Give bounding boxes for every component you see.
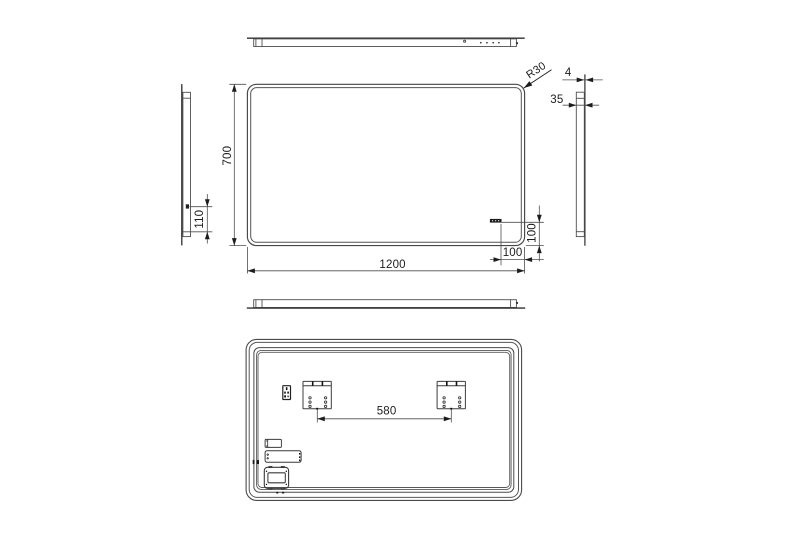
svg-text:35: 35 xyxy=(550,94,563,106)
svg-text:700: 700 xyxy=(222,146,234,166)
svg-text:580: 580 xyxy=(377,405,397,417)
svg-text:100: 100 xyxy=(526,223,538,243)
svg-text:4: 4 xyxy=(565,67,572,79)
svg-text:110: 110 xyxy=(194,210,206,229)
svg-text:1200: 1200 xyxy=(379,259,405,271)
svg-text:100: 100 xyxy=(503,247,523,259)
